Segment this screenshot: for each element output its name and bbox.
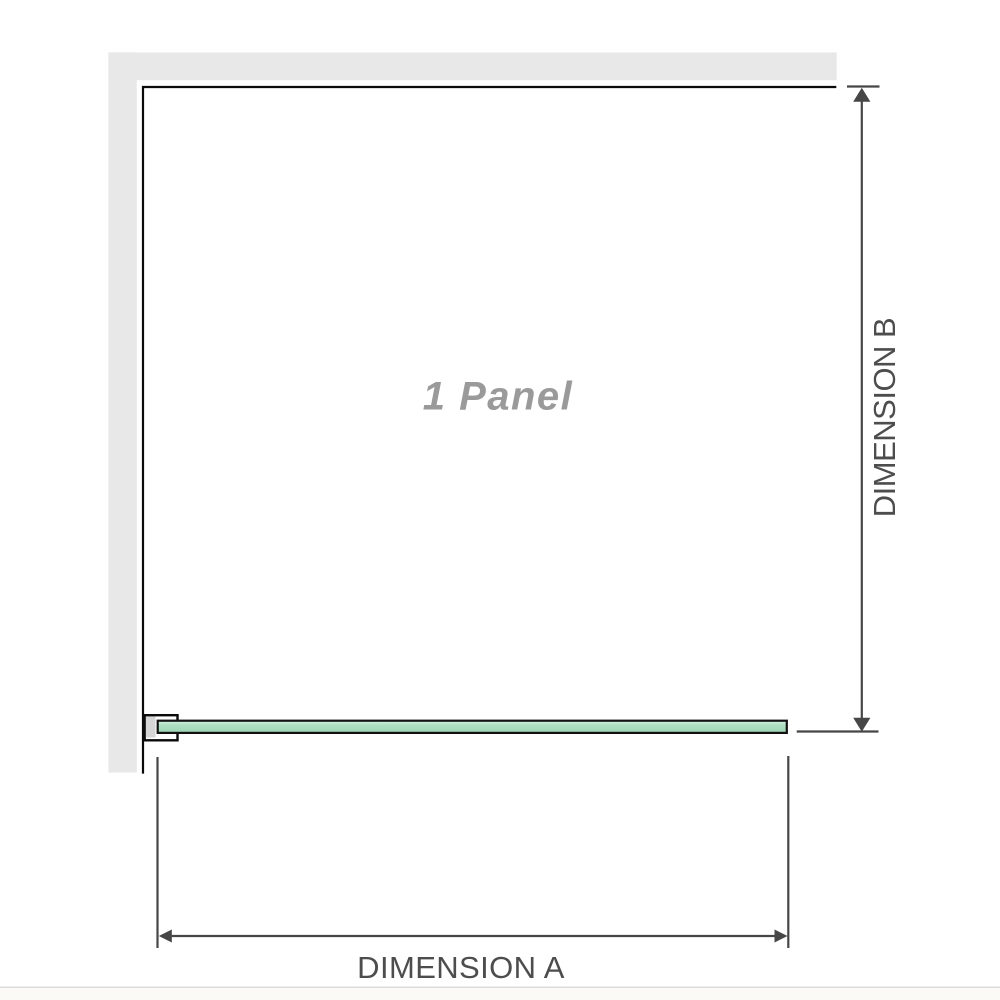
svg-text:DIMENSION A: DIMENSION A — [357, 950, 565, 985]
svg-text:1 Panel: 1 Panel — [423, 375, 574, 419]
svg-text:DIMENSION B: DIMENSION B — [867, 318, 902, 517]
